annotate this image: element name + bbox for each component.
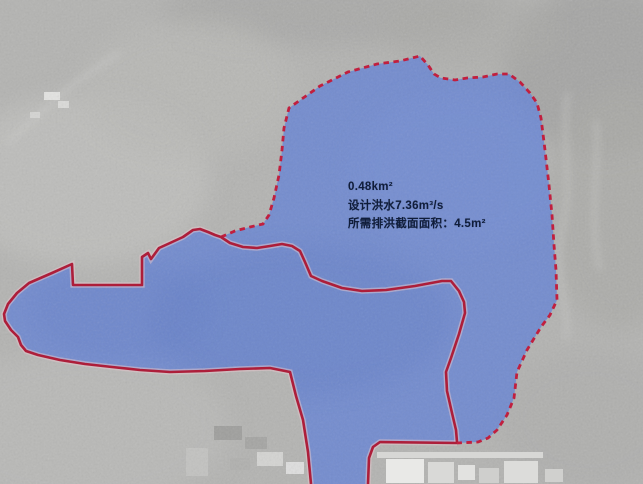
building-cluster-bottomcenter xyxy=(377,452,563,483)
satellite-map: 0.48km² 设计洪水7.36m³/s 所需排洪截面面积：4.5m² xyxy=(0,0,643,484)
map-canvas xyxy=(0,0,643,484)
